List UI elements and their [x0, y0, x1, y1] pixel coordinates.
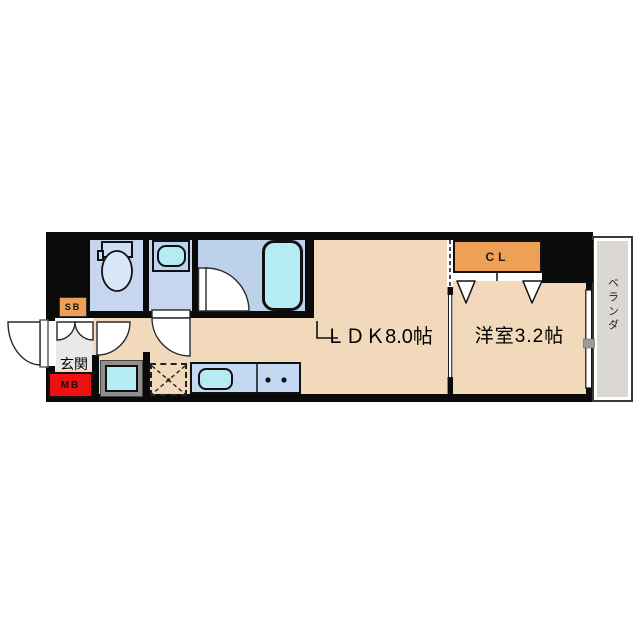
entrance-step-strip [55, 318, 93, 325]
balcony: ベランダ [592, 236, 633, 402]
shoe-box: SB [59, 297, 87, 317]
meter-box: MB [48, 372, 93, 398]
closet-front-strip [453, 273, 542, 281]
refrigerator-space [150, 363, 187, 396]
wash-basin [157, 245, 186, 267]
closet: CL [453, 240, 542, 273]
wall-stub-left [92, 355, 99, 402]
entrance-label: 玄関 [55, 354, 93, 374]
shoe-box-label: SB [65, 302, 82, 312]
balcony-label: ベランダ [605, 277, 621, 333]
floor-plan: ベランダ CL SB MB [0, 0, 640, 640]
ldk-label: ＬＤＫ8.0帖 [308, 320, 450, 349]
bedroom-label: 洋室3.2帖 [453, 321, 586, 348]
washing-machine-pan [105, 365, 138, 392]
entrance-door-arc [8, 322, 40, 365]
wall-stub-kitchen [143, 352, 150, 402]
closet-label: CL [486, 250, 510, 264]
bedroom-corner-wall-block [542, 240, 593, 283]
bathtub [262, 240, 303, 311]
toilet-flush-knob [97, 250, 104, 261]
toilet-tank [101, 241, 133, 258]
kitchen-sink [198, 368, 233, 390]
meter-box-label: MB [61, 380, 81, 391]
washing-machine-space [100, 360, 143, 397]
